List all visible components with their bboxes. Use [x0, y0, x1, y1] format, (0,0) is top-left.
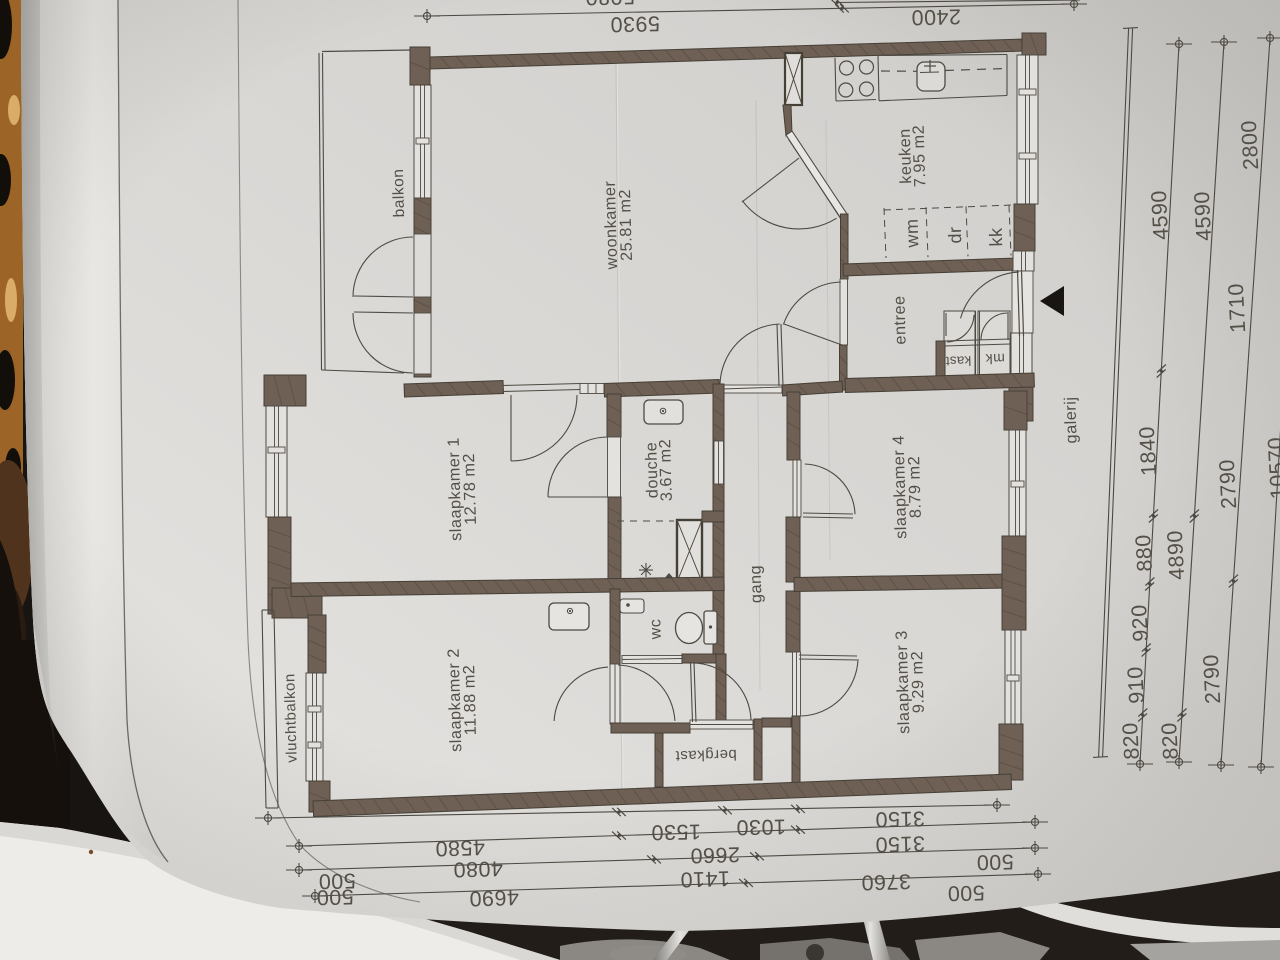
- svg-text:kk: kk: [986, 227, 1007, 247]
- svg-text:12.78 m2: 12.78 m2: [460, 453, 480, 525]
- svg-text:880: 880: [1131, 534, 1157, 573]
- svg-text:4080: 4080: [453, 856, 503, 881]
- svg-text:11.88 m2: 11.88 m2: [460, 664, 480, 735]
- svg-text:25.81 m2: 25.81 m2: [616, 189, 636, 261]
- svg-text:1030: 1030: [736, 815, 786, 840]
- svg-text:920: 920: [1127, 604, 1153, 643]
- svg-text:820: 820: [1157, 722, 1183, 761]
- svg-text:500: 500: [316, 884, 354, 909]
- svg-text:2790: 2790: [1215, 458, 1242, 509]
- svg-text:4590: 4590: [1147, 189, 1174, 240]
- svg-text:2800: 2800: [1237, 119, 1264, 170]
- svg-text:balkon: balkon: [390, 168, 408, 217]
- svg-text:4590: 4590: [1190, 190, 1217, 241]
- svg-text:wc: wc: [647, 618, 665, 640]
- svg-text:mk: mk: [984, 351, 1005, 368]
- svg-text:820: 820: [1118, 722, 1144, 761]
- svg-text:7.95 m2: 7.95 m2: [910, 125, 930, 188]
- svg-text:9.29 m2: 9.29 m2: [908, 651, 928, 714]
- svg-text:entree: entree: [890, 295, 909, 345]
- svg-text:gang: gang: [747, 565, 766, 604]
- svg-text:galerij: galerij: [1061, 396, 1080, 443]
- svg-text:5080: 5080: [585, 0, 635, 10]
- svg-text:500: 500: [947, 880, 985, 905]
- svg-text:bergkast: bergkast: [675, 746, 737, 765]
- svg-text:2790: 2790: [1199, 653, 1226, 704]
- svg-text:500: 500: [976, 849, 1014, 874]
- svg-text:8.79 m2: 8.79 m2: [905, 456, 925, 519]
- svg-text:910: 910: [1123, 666, 1149, 705]
- svg-text:2660: 2660: [690, 842, 740, 867]
- svg-text:4890: 4890: [1163, 529, 1190, 580]
- svg-text:2400: 2400: [911, 4, 961, 29]
- svg-text:dr: dr: [945, 226, 965, 244]
- svg-text:3760: 3760: [861, 869, 911, 894]
- svg-text:1530: 1530: [651, 820, 701, 845]
- svg-text:1710: 1710: [1224, 282, 1251, 333]
- svg-text:1840: 1840: [1135, 425, 1162, 476]
- svg-text:10570: 10570: [1263, 436, 1280, 499]
- svg-text:3.67 m2: 3.67 m2: [656, 439, 676, 502]
- svg-text:4580: 4580: [435, 835, 485, 860]
- svg-text:kast: kast: [945, 353, 971, 369]
- svg-text:vluchtbalkon: vluchtbalkon: [281, 673, 300, 763]
- svg-text:4690: 4690: [469, 885, 519, 910]
- svg-text:5930: 5930: [610, 11, 660, 36]
- svg-text:1410: 1410: [680, 866, 730, 891]
- svg-text:3150: 3150: [875, 807, 925, 832]
- svg-text:wm: wm: [902, 218, 923, 249]
